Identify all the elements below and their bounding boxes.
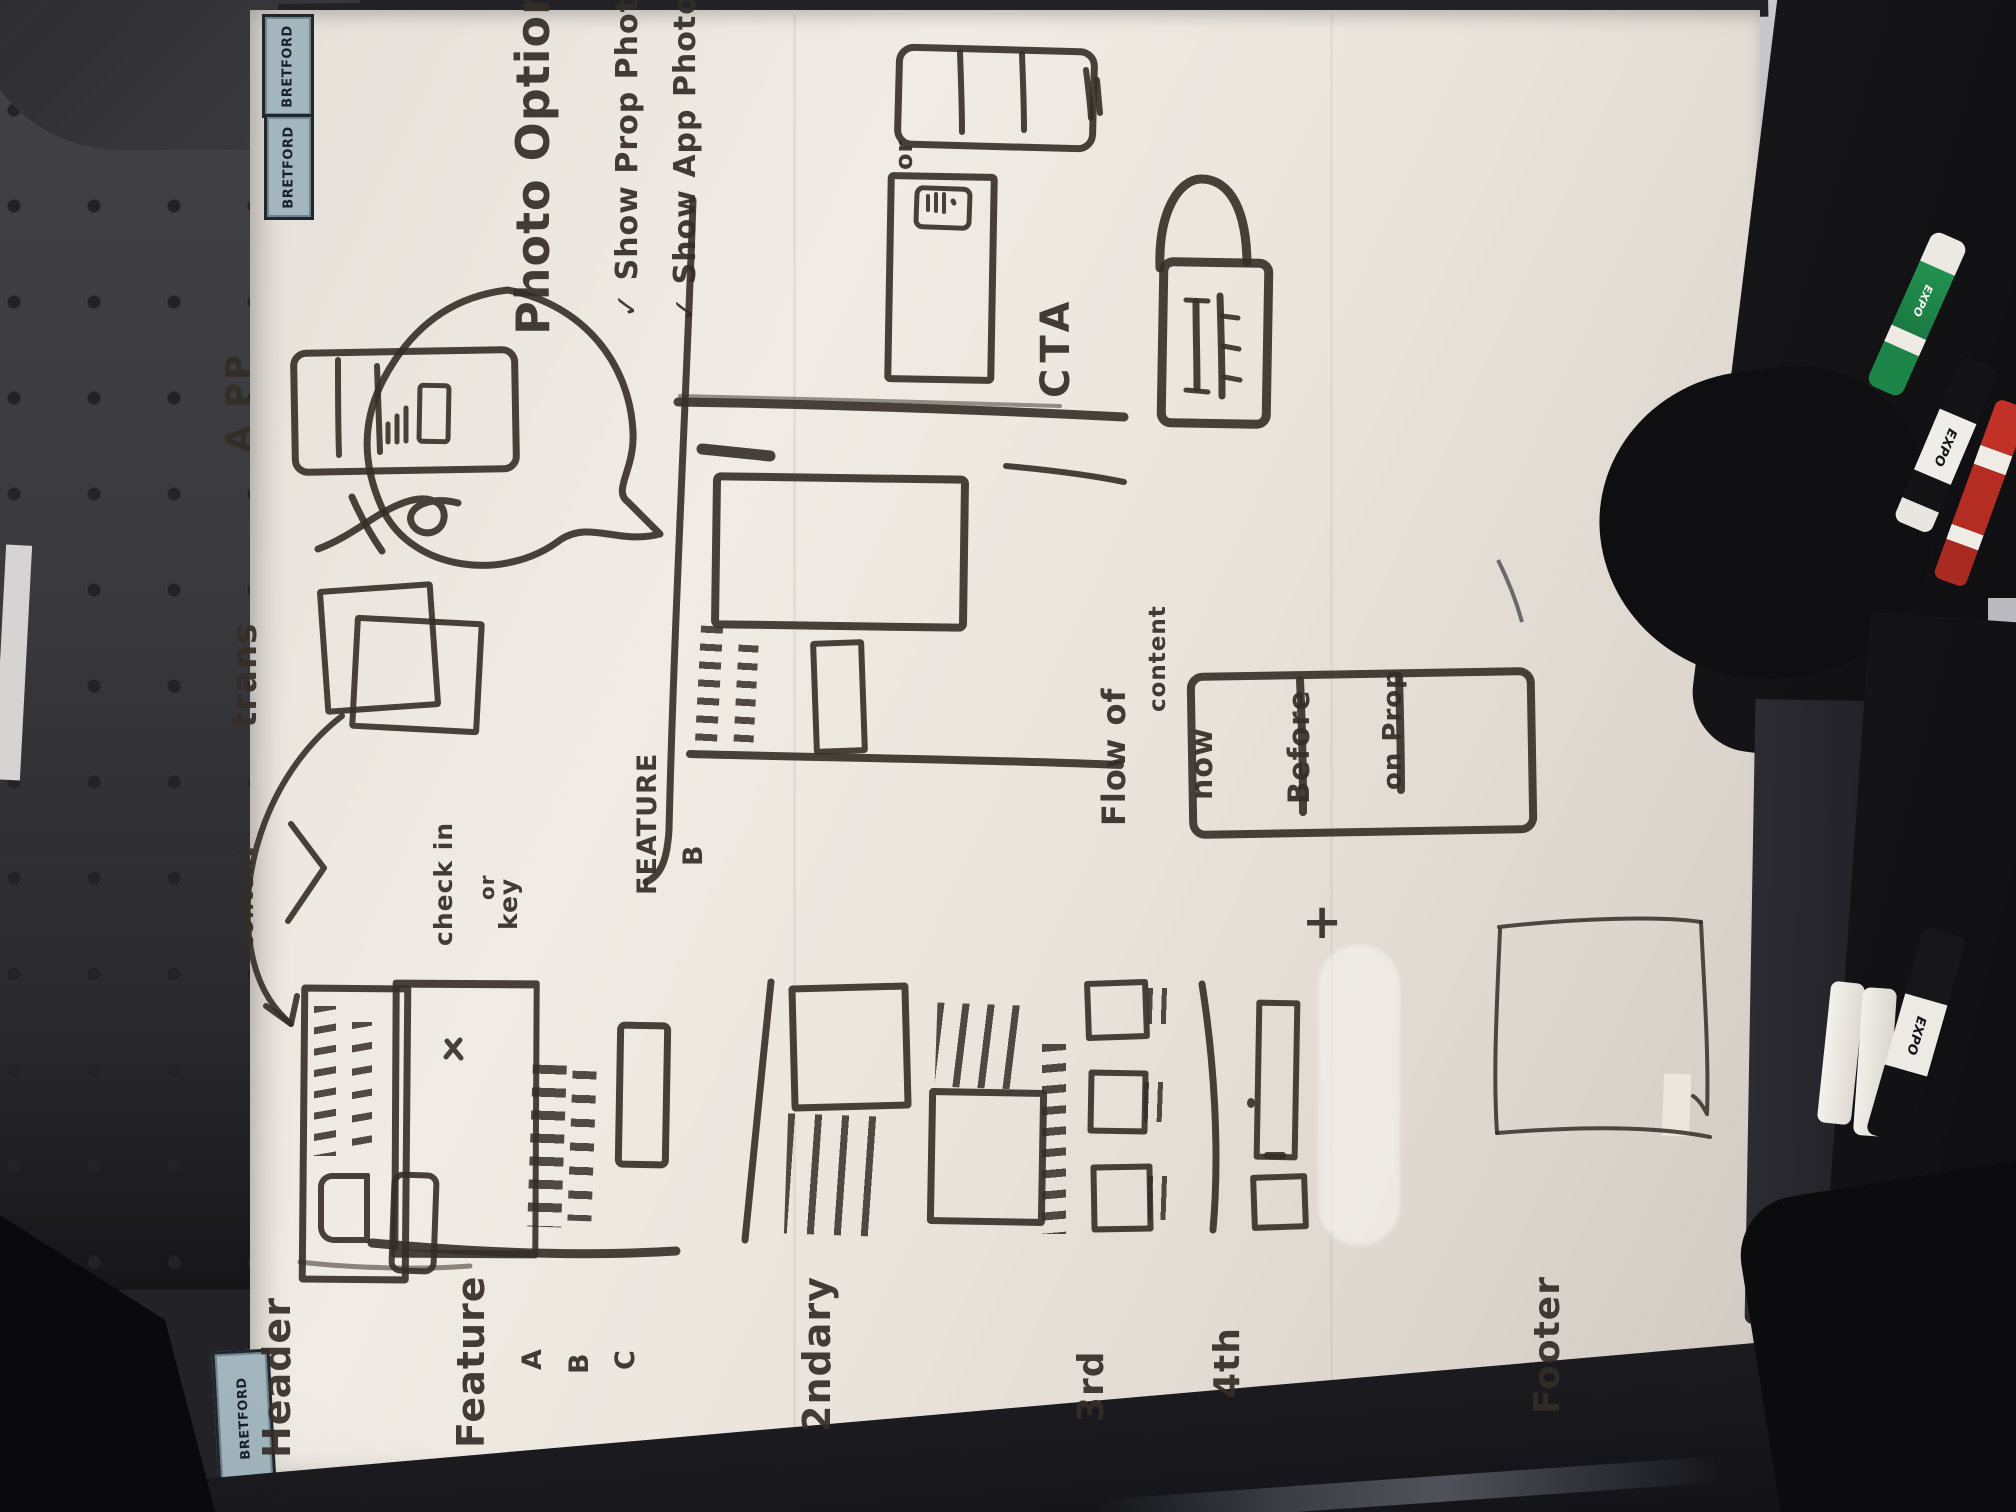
content-note: content — [236, 846, 258, 948]
brand-sticker: BRETFORD — [264, 114, 314, 220]
photo-option-item-text: Show Prop Photo — [610, 0, 645, 280]
flow-cell-now: now — [1188, 727, 1218, 800]
checkin-note-line2: key — [496, 878, 521, 930]
feature-variant-a: A — [519, 1348, 546, 1370]
wireframe-secondary-bars — [784, 1113, 880, 1236]
wireframe-third-thumb-lines — [1144, 1082, 1163, 1122]
section-label-third: 3rd — [1074, 1350, 1110, 1422]
feature-b-word: FEATURE — [634, 753, 661, 895]
wireframe-header-dashes — [314, 1006, 336, 1156]
photo-option-item-text: Show App Photo — [668, 0, 703, 284]
wireframe-header-dashes — [352, 1022, 372, 1154]
flow-table — [1187, 667, 1538, 839]
section-label-header: Header — [258, 1297, 296, 1458]
sketch-cta-lock-body — [1157, 257, 1274, 429]
cta-label: CTA — [1036, 296, 1076, 399]
wireframe-feature-box — [391, 980, 539, 1259]
app-note: A PP — [222, 352, 256, 452]
wireframe-secondary-box — [788, 982, 911, 1111]
feature-variant-c: C — [612, 1349, 639, 1370]
checkmark-icon: ✓ — [610, 292, 645, 318]
section-label-secondary: 2ndary — [798, 1276, 836, 1432]
wireframe-third-thumb — [1084, 979, 1150, 1041]
or-divider-note: or — [892, 140, 916, 170]
trans-note: trans — [228, 623, 262, 728]
brand-sticker: BRETFORD — [262, 14, 314, 118]
plus-mark: + — [1302, 894, 1342, 950]
flow-title-line1: Flow of — [1098, 688, 1130, 826]
sketch-app-phone-tile — [416, 383, 451, 445]
wireframe-feature-button — [615, 1022, 672, 1169]
marker-brand-label: EXPO — [1931, 426, 1960, 468]
checkin-note-line1: check in — [431, 822, 456, 946]
wireframe-fourth-rect — [1254, 1000, 1301, 1161]
tape-piece — [1662, 1074, 1691, 1137]
easel-fabric-corner — [1732, 1159, 2016, 1512]
sketch-app-phone — [290, 346, 520, 476]
wireframe-third-bars — [935, 1003, 1022, 1090]
sketch-featureb-image — [711, 472, 969, 632]
wireframe-third-dashes — [1042, 1044, 1066, 1234]
wireframe-feature-list-dashes — [527, 1064, 567, 1227]
brand-sticker-text: BRETFORD — [281, 25, 296, 107]
wireframe-fourth-dot — [1247, 1098, 1255, 1108]
photo-option-item: ✓ Show Prop Photo — [613, 0, 643, 318]
wireframe-third-thumb — [1087, 1069, 1148, 1134]
section-label-feature: Feature — [452, 1275, 490, 1448]
wireframe-third-thumb-lines — [1148, 1176, 1169, 1220]
wireframe-third-thumb-lines — [1148, 988, 1169, 1024]
sketch-phone-horizontal — [894, 43, 1099, 152]
marker-brand-label: EXPO — [1910, 282, 1935, 318]
feature-b-letter: B — [680, 844, 707, 866]
brand-sticker-text: BRETFORD — [234, 1376, 253, 1459]
section-label-footer: Footer — [1530, 1276, 1566, 1414]
flow-cell-onprop: on Prop — [1380, 669, 1406, 790]
wireframe-third-box — [927, 1088, 1047, 1226]
sketch-battery-icon — [913, 185, 973, 231]
wireframe-header-logo-shape — [318, 1173, 370, 1243]
flow-cell-before: Before — [1285, 690, 1314, 804]
wireframe-fourth-dash — [1264, 1152, 1286, 1159]
flow-title-line2: content — [1147, 605, 1170, 712]
wireframe-third-thumb — [1090, 1163, 1153, 1232]
erased-smudge — [1318, 945, 1400, 1245]
section-label-fourth: 4th — [1210, 1327, 1246, 1398]
wireframe-fourth-square — [1250, 1173, 1309, 1231]
whiteboard-photo: BRETFORD BRETFORD BRETFORD — [0, 0, 2016, 1512]
marker-brand-label: EXPO — [1903, 1014, 1928, 1056]
brand-sticker-text: BRETFORD — [282, 126, 297, 208]
sketch-trans-card-front — [349, 615, 485, 736]
photo-option-item: ✓ Show App Photo — [671, 0, 701, 322]
photo-option-heading: Photo Option — [510, 0, 556, 335]
sketch-featureb-small-rect — [810, 639, 868, 755]
checkmark-icon: ✓ — [668, 296, 703, 322]
feature-variant-b: B — [566, 1352, 593, 1374]
